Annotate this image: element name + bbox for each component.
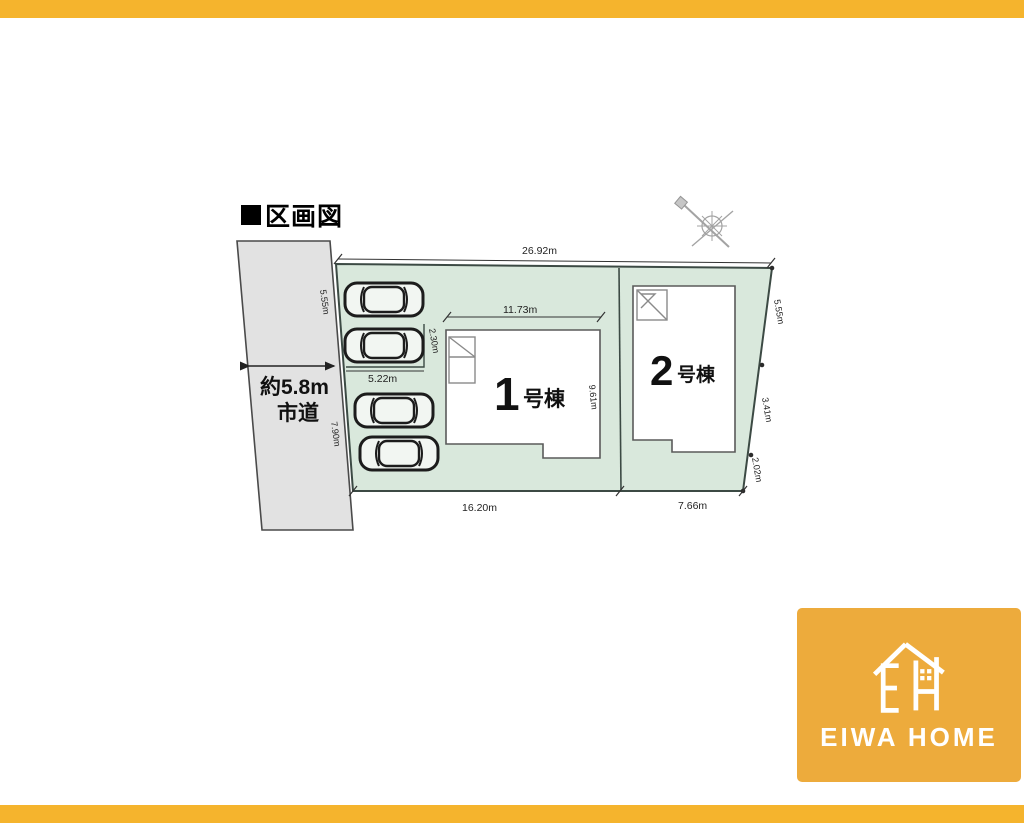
dim-right-upper: 5.55m: [772, 299, 786, 325]
compass-icon: [675, 196, 733, 247]
building-1-balcony-icon: [449, 337, 475, 383]
eiwa-home-logo: EIWA HOME: [797, 608, 1021, 782]
building-2-suffix: 号棟: [677, 363, 716, 386]
building-1-number: 1: [494, 368, 520, 420]
car: [355, 394, 433, 427]
road-width-label: 約5.8m: [260, 375, 329, 399]
road-type-label: 市道: [277, 401, 319, 425]
logo-brand-text: EIWA HOME: [820, 722, 998, 753]
building-1-suffix: 号棟: [523, 387, 566, 411]
building-2-number: 2: [650, 347, 673, 394]
car: [345, 283, 423, 316]
eiwa-home-logo-icon: [866, 638, 952, 714]
car: [345, 329, 423, 362]
dim-bottom-left: 16.20m: [462, 502, 497, 514]
car: [360, 437, 438, 470]
logo-window-dots: [920, 669, 931, 680]
dim-right-lower: 2.02m: [750, 457, 764, 483]
dim-bottom-right: 7.66m: [678, 500, 707, 512]
dim-right-middle: 3.41m: [760, 397, 774, 423]
dim-b1-top: 11.73m: [503, 304, 537, 316]
dim-carport-width: 5.22m: [368, 373, 397, 385]
building-2-balcony-icon: [637, 290, 667, 320]
dim-top: 26.92m: [522, 245, 557, 257]
